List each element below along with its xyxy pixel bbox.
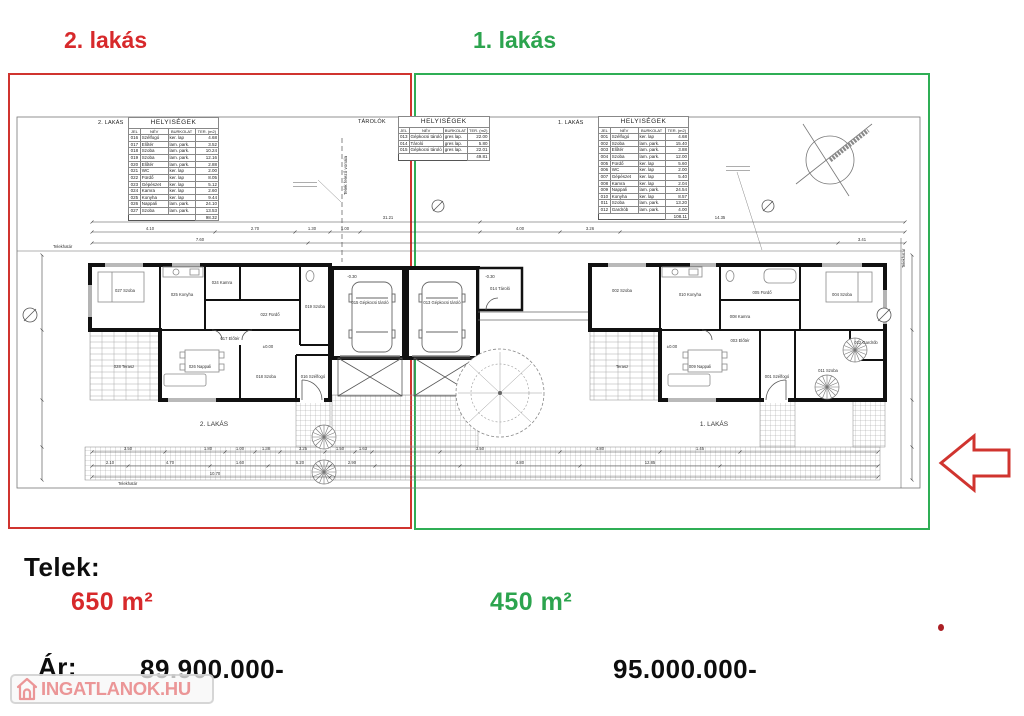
- plot-divider: Telek felező vonala: [293, 138, 762, 262]
- svg-text:011 Szoba: 011 Szoba: [818, 368, 838, 373]
- svg-text:1. LAKÁS: 1. LAKÁS: [700, 419, 729, 428]
- svg-text:12.85: 12.85: [645, 460, 656, 465]
- svg-text:10.70: 10.70: [210, 471, 221, 476]
- svg-text:4.00: 4.00: [516, 226, 525, 231]
- svg-text:31.21: 31.21: [383, 215, 394, 220]
- svg-text:-0.30: -0.30: [347, 274, 357, 279]
- svg-text:002 Szoba: 002 Szoba: [612, 288, 633, 293]
- svg-text:012 Gardrób: 012 Gardrób: [854, 340, 878, 345]
- svg-text:4.70: 4.70: [166, 460, 175, 465]
- svg-text:005 Fürdő: 005 Fürdő: [752, 290, 772, 295]
- svg-text:2.90: 2.90: [348, 460, 357, 465]
- svg-text:1.45: 1.45: [696, 446, 705, 451]
- svg-text:1.30: 1.30: [308, 226, 317, 231]
- svg-text:3.50: 3.50: [124, 446, 133, 451]
- svg-text:009 Nappali: 009 Nappali: [689, 364, 711, 369]
- svg-text:2.10: 2.10: [106, 460, 115, 465]
- svg-text:014 Tároló: 014 Tároló: [490, 286, 511, 291]
- svg-text:019 Szoba: 019 Szoba: [305, 304, 326, 309]
- svg-text:4.80: 4.80: [596, 446, 605, 451]
- svg-text:1.00: 1.00: [341, 226, 350, 231]
- watermark-badge: INGATLANOK.HU: [10, 674, 214, 704]
- svg-text:028 Terasz: 028 Terasz: [114, 364, 134, 369]
- plot-label: Telek:: [24, 552, 100, 583]
- svg-text:017 Előtér: 017 Előtér: [220, 336, 240, 341]
- table-storage-caption: TÁROLÓK: [358, 119, 386, 125]
- svg-text:3.41: 3.41: [858, 237, 867, 242]
- table-unit1-caption: 1. LAKÁS: [558, 120, 583, 126]
- svg-text:7.60: 7.60: [196, 237, 205, 242]
- svg-text:1.50: 1.50: [336, 446, 345, 451]
- svg-text:024 Kamra: 024 Kamra: [212, 280, 233, 285]
- page: 2. lakás 1. lakás: [0, 0, 1024, 716]
- svg-text:013 Gépkocsi tároló: 013 Gépkocsi tároló: [423, 300, 461, 305]
- price-unit1: 95.000.000-: [613, 654, 757, 685]
- svg-text:010 Konyha: 010 Konyha: [679, 292, 702, 297]
- svg-text:027 Szoba: 027 Szoba: [115, 288, 136, 293]
- svg-text:018 Szoba: 018 Szoba: [256, 374, 277, 379]
- plot-area-unit2: 650 m²: [71, 588, 153, 617]
- svg-text:1.38: 1.38: [262, 446, 271, 451]
- svg-text:±0.00: ±0.00: [263, 344, 274, 349]
- svg-text:5.20: 5.20: [296, 460, 305, 465]
- svg-text:2.70: 2.70: [251, 226, 260, 231]
- svg-text:1.63: 1.63: [359, 446, 368, 451]
- red-dot-marker: [938, 624, 944, 631]
- watermark-text: INGATLANOK.HU: [41, 678, 191, 700]
- table-unit2-caption: 2. LAKÁS: [98, 120, 123, 126]
- svg-text:025 Konyha: 025 Konyha: [171, 292, 194, 297]
- svg-text:022 Fürdő: 022 Fürdő: [260, 312, 280, 317]
- svg-text:1.80: 1.80: [204, 446, 213, 451]
- table-unit1: HELYISÉGEK JELNÉV BURKOLATTER. (m2) 001S…: [598, 116, 689, 220]
- direction-arrow-icon: [941, 436, 1009, 490]
- svg-text:Telek felező vonala: Telek felező vonala: [343, 155, 348, 195]
- tree-icon: [456, 349, 544, 437]
- svg-text:Telekhatár: Telekhatár: [118, 481, 138, 486]
- svg-text:3.50: 3.50: [476, 446, 485, 451]
- svg-text:Terasz: Terasz: [616, 364, 628, 369]
- svg-text:026 Nappali: 026 Nappali: [189, 364, 211, 369]
- svg-text:Telekhatár: Telekhatár: [901, 248, 906, 268]
- svg-text:4.80: 4.80: [516, 460, 525, 465]
- svg-text:1.00: 1.00: [236, 446, 245, 451]
- svg-text:2. LAKÁS: 2. LAKÁS: [200, 419, 229, 428]
- svg-text:-0.30: -0.30: [485, 274, 495, 279]
- svg-text:003 Előtér: 003 Előtér: [730, 338, 750, 343]
- compass-icon: [796, 124, 872, 196]
- svg-text:004 Szoba: 004 Szoba: [832, 292, 853, 297]
- svg-text:3.26: 3.26: [586, 226, 595, 231]
- svg-text:008 Kamra: 008 Kamra: [730, 314, 751, 319]
- svg-text:3.25: 3.25: [299, 446, 308, 451]
- table-unit2: HELYISÉGEK JELNÉV BURKOLATTER. (m2) 016S…: [128, 117, 219, 221]
- svg-text:1.60: 1.60: [236, 460, 245, 465]
- svg-text:14.35: 14.35: [715, 215, 726, 220]
- svg-text:016 Szélfogó: 016 Szélfogó: [301, 374, 326, 379]
- svg-text:Telekhatár: Telekhatár: [53, 244, 73, 249]
- house-logo-icon: [16, 677, 38, 701]
- svg-text:4.10: 4.10: [146, 226, 155, 231]
- svg-text:015 Gépkocsi tároló: 015 Gépkocsi tároló: [351, 300, 389, 305]
- table-storage: HELYISÉGEK JELNÉV BURKOLATTER. (m2) 013G…: [398, 116, 490, 161]
- svg-text:001 Szélfogó: 001 Szélfogó: [765, 374, 790, 379]
- plot-area-unit1: 450 m²: [490, 588, 572, 617]
- svg-text:±0.00: ±0.00: [667, 344, 678, 349]
